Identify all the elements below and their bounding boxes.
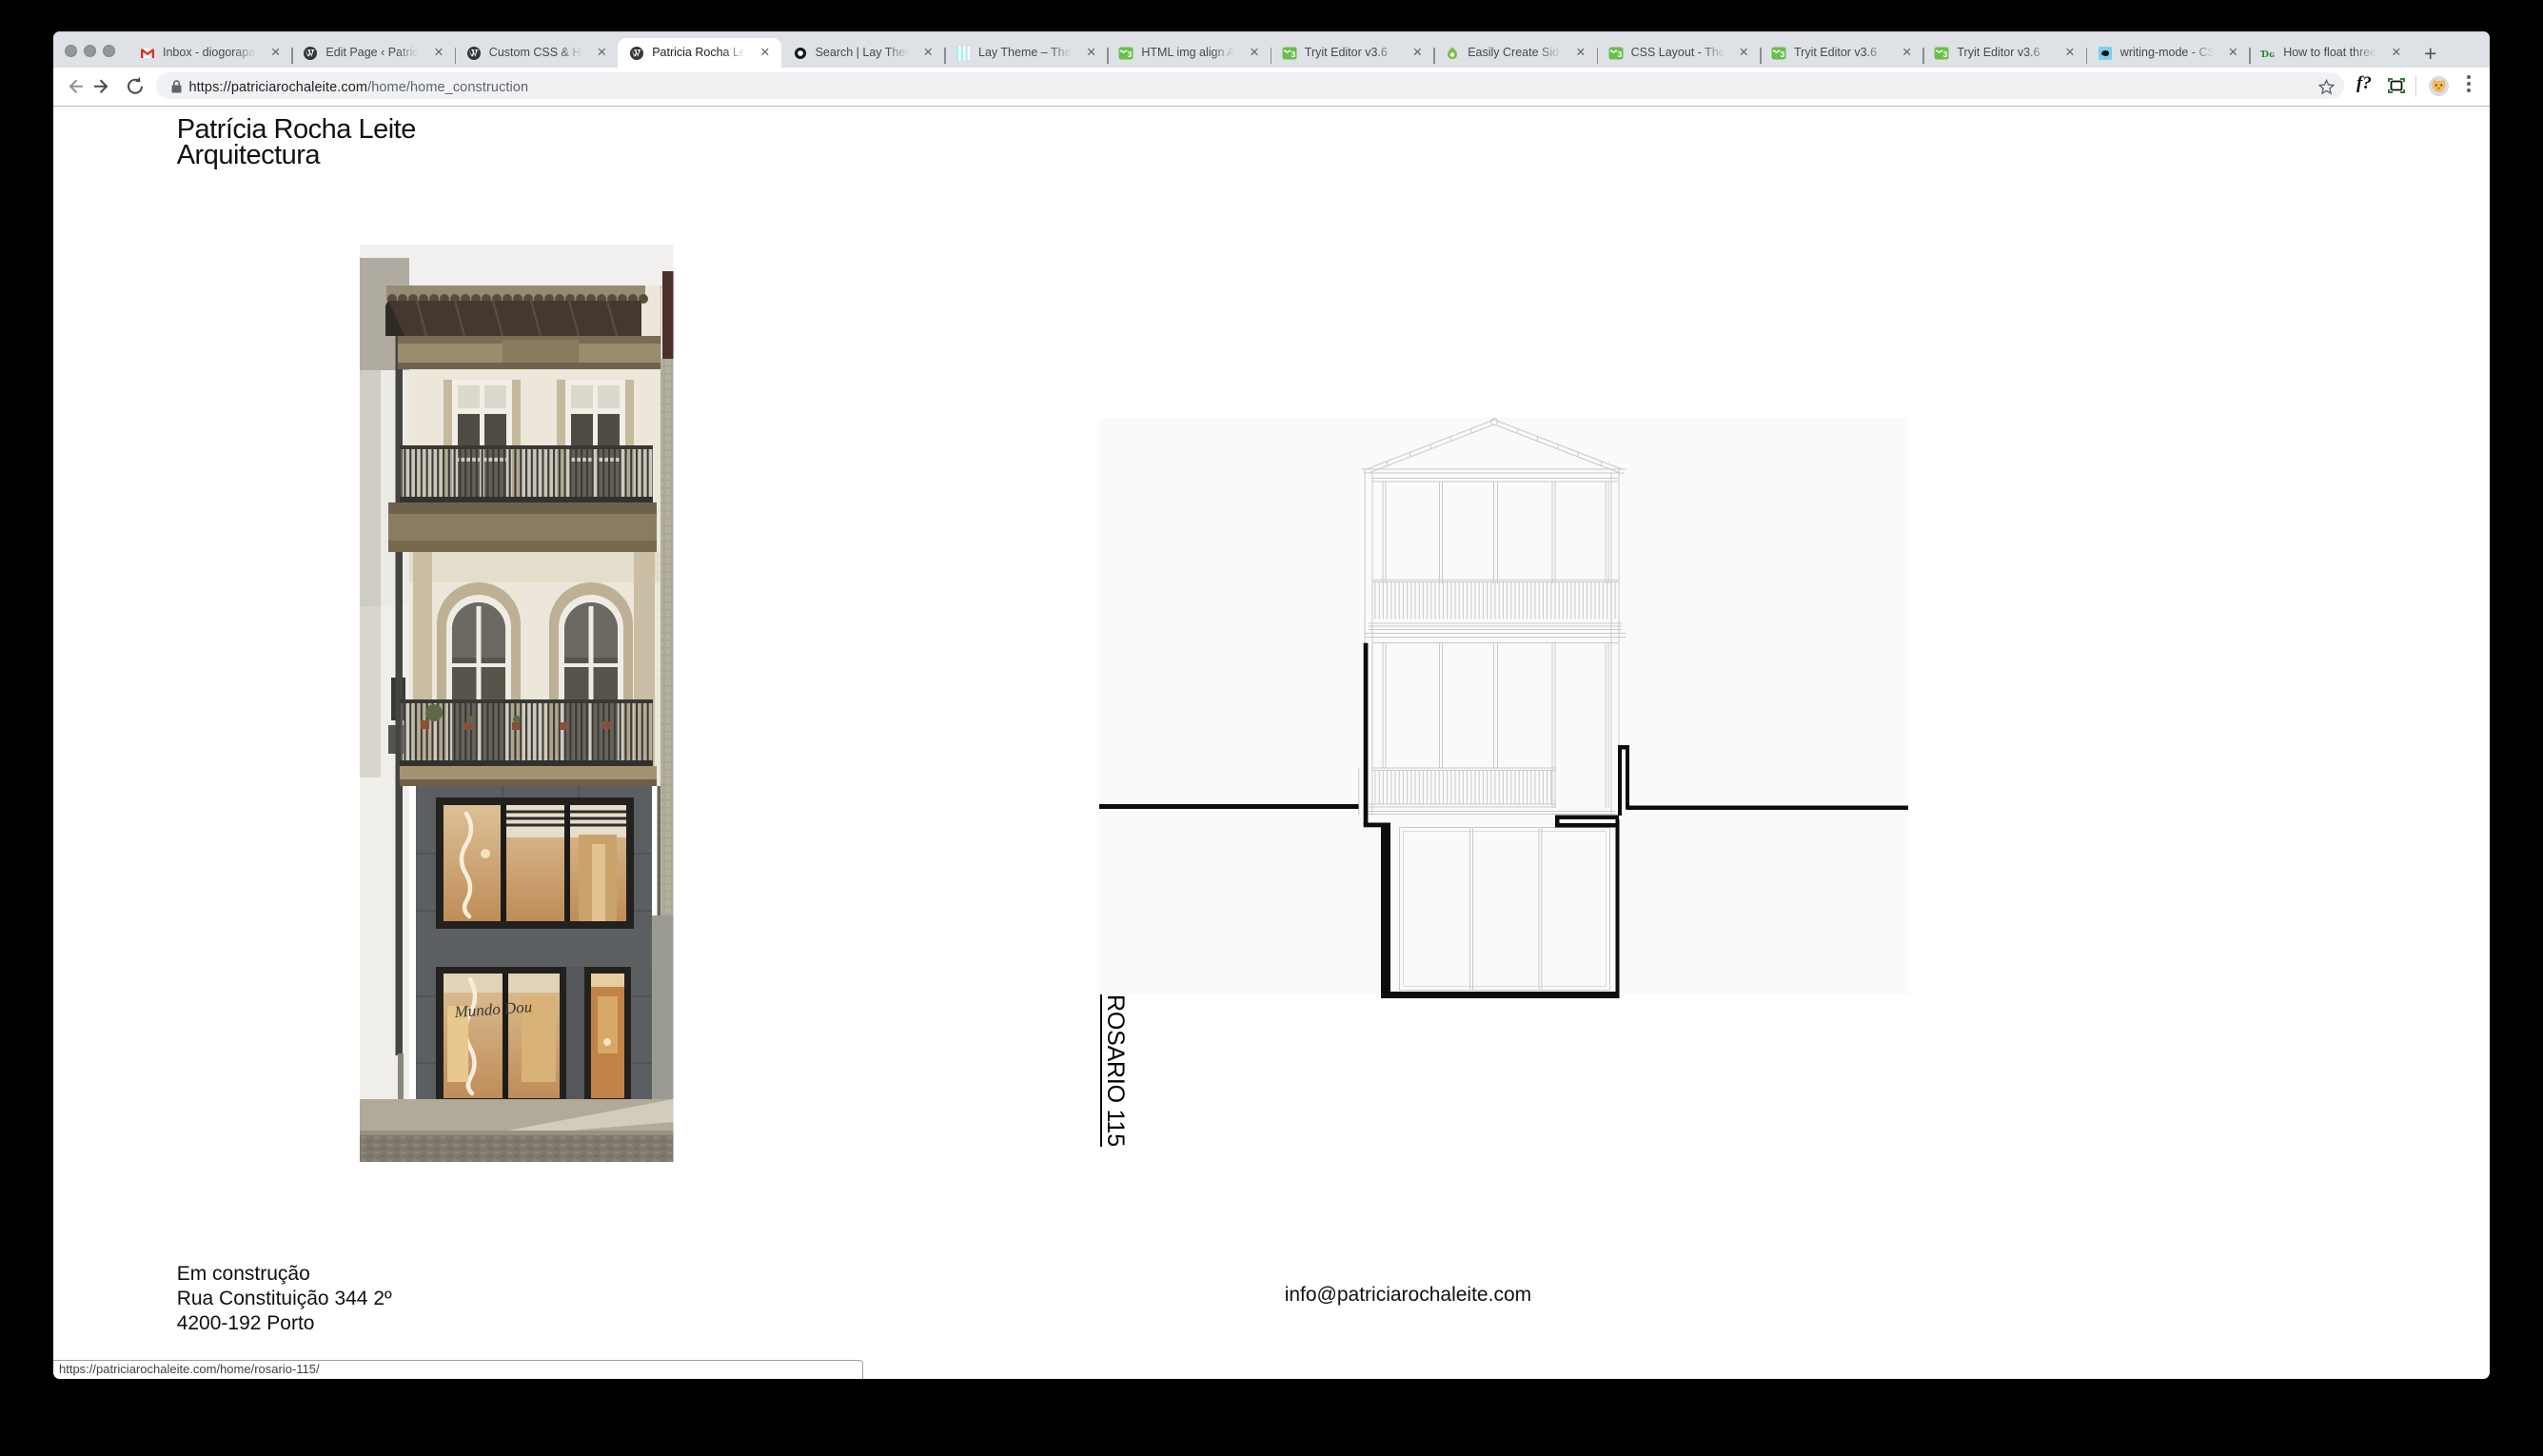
- svg-text:3: 3: [1617, 49, 1622, 59]
- svg-text:3: 3: [1128, 49, 1133, 59]
- svg-text:3: 3: [1781, 49, 1785, 59]
- svg-text:3: 3: [1943, 49, 1948, 59]
- svg-text:3: 3: [1291, 49, 1295, 59]
- svg-text:Ɗɢ: Ɗɢ: [2260, 49, 2276, 60]
